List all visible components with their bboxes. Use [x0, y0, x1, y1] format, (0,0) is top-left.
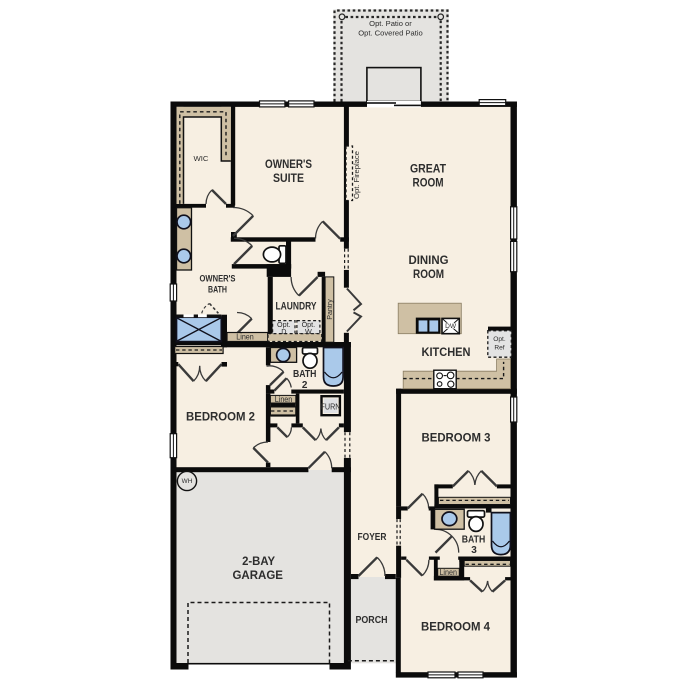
svg-text:BATH: BATH	[208, 285, 227, 295]
svg-text:3: 3	[471, 545, 477, 556]
svg-text:FOYER: FOYER	[358, 532, 388, 543]
svg-text:GARAGE: GARAGE	[232, 568, 283, 582]
svg-text:Pantry: Pantry	[325, 299, 334, 320]
svg-text:BEDROOM 4: BEDROOM 4	[421, 620, 490, 634]
svg-text:Opt. Fireplace: Opt. Fireplace	[352, 151, 361, 199]
svg-text:SUITE: SUITE	[273, 171, 304, 185]
svg-text:OWNER'S: OWNER'S	[265, 157, 312, 171]
svg-text:BEDROOM 3: BEDROOM 3	[422, 431, 491, 445]
svg-text:GREAT: GREAT	[410, 162, 447, 176]
svg-text:ROOM: ROOM	[413, 176, 444, 190]
svg-text:2-BAY: 2-BAY	[242, 554, 275, 568]
svg-text:Linen: Linen	[275, 395, 293, 404]
svg-text:Linen: Linen	[236, 333, 254, 342]
svg-text:BEDROOM 2: BEDROOM 2	[186, 410, 255, 424]
svg-text:WIC: WIC	[194, 154, 210, 163]
svg-text:LAUNDRY: LAUNDRY	[276, 301, 318, 313]
svg-text:Linen: Linen	[439, 568, 457, 577]
svg-text:BATH: BATH	[462, 535, 486, 546]
svg-text:ROOM: ROOM	[413, 267, 444, 281]
svg-text:Ref: Ref	[494, 345, 504, 352]
svg-text:PORCH: PORCH	[356, 615, 388, 626]
svg-text:FURN: FURN	[321, 402, 341, 412]
svg-text:Opt. Patio or: Opt. Patio or	[369, 19, 412, 28]
svg-text:W: W	[305, 327, 312, 336]
svg-text:WH: WH	[182, 478, 193, 485]
svg-text:OWNER'S: OWNER'S	[200, 274, 236, 284]
svg-text:BATH: BATH	[293, 369, 317, 380]
svg-text:2: 2	[302, 380, 308, 391]
svg-text:Opt.: Opt.	[493, 336, 506, 343]
svg-text:KITCHEN: KITCHEN	[422, 345, 471, 359]
svg-text:DINING: DINING	[409, 253, 449, 267]
svg-text:Opt. Covered Patio: Opt. Covered Patio	[358, 29, 423, 38]
svg-text:D: D	[281, 327, 286, 336]
svg-text:DW: DW	[445, 323, 457, 330]
